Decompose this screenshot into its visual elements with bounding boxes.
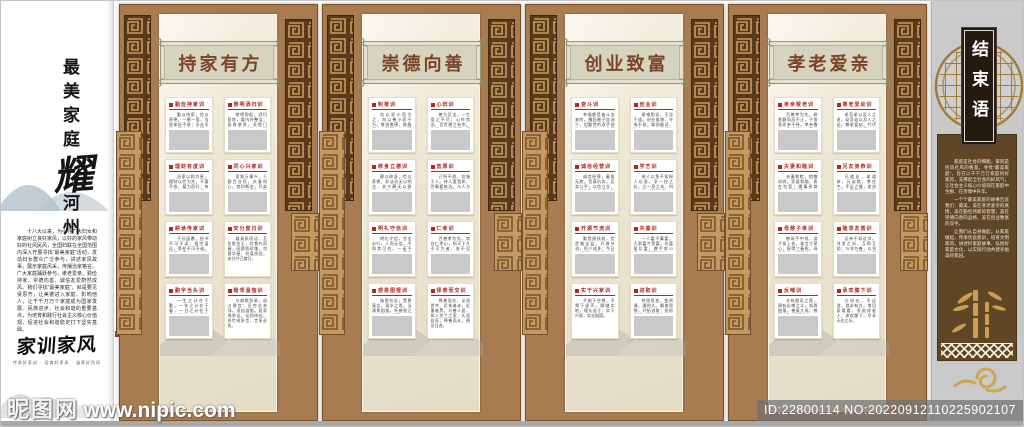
family-motto-card: 兄友弟恭训 兄道友，弟道恭，兄弟睦，孝在中。手足之情，血浓于水；互帮互让，和气满… (833, 159, 881, 215)
bamboo-icon (945, 288, 1009, 340)
family-motto-card: 同心兴家训 家和万事兴，人勤百业旺。夫妻同心，其利断金；兄弟协力，守望相助，勠力… (224, 159, 272, 215)
family-motto-card: 实干兴家训 不驰于空想，不骛于虚声。脚踏实地，埋头苦干；实干兴家，实业报国。 (571, 283, 619, 339)
fret-lattice-strip-light (116, 131, 142, 335)
card-body: 静以修身，俭以养德。非淡泊无以明志，非宁静无以致远。修身立德，方能行稳致远。 (372, 174, 412, 190)
corner-scroll-icon (882, 78, 892, 88)
card-body: 慈母手中线，游子身上衣。谁言寸草心，报得三春晖。母慈子孝，其乐融融。 (778, 236, 818, 252)
card-title-row: 进取训 (634, 287, 674, 296)
card-body: 治家以和为贵，理财以俭为先。不奢不吝，量力而行；有计有划，持之以恒，家道自然兴旺… (169, 174, 209, 190)
red-square-bullet-icon (372, 103, 376, 107)
card-title-row: 孝亲敬老训 (778, 101, 818, 110)
red-square-bullet-icon (778, 289, 782, 293)
corner-scroll-icon (679, 78, 689, 88)
card-image-placeholder (372, 130, 412, 150)
card-title-row: 奋斗训 (575, 101, 615, 110)
card-body: 授人以鱼不如授人以渔。学一技之长，立一身之本；科技兴业，知识致富。 (634, 174, 674, 190)
card-title-row: 宽厚训 (431, 163, 471, 172)
card-image-placeholder (431, 254, 471, 274)
fret-lattice-strip-light (725, 131, 751, 335)
panel-title-plaque: 创业致富 (566, 41, 684, 84)
card-image-placeholder (372, 254, 412, 274)
fret-lattice-strip-light (522, 131, 548, 335)
card-title: 学艺训 (640, 163, 658, 170)
family-motto-card: 诚信经营训 诚信经营，童叟无欺。货真价实，买卖公平；以信立业，以质取胜，生意自然… (571, 159, 619, 215)
card-title: 诚信经营训 (581, 163, 611, 170)
family-motto-card: 安分度日训 器具质而洁，瓦缶胜金玉；饮食约而精，园蔬愈珍馐。勿营华屋，勿谋良田，… (224, 221, 272, 277)
card-title-row: 实干兴家训 (575, 287, 615, 296)
card-title: 明礼守信训 (378, 225, 408, 232)
culture-panel: 持家有方 勤俭持家训 勤以持家，俭以养德。一粥一饭，当思来处不易；半丝半缕，恒念… (119, 4, 318, 421)
card-title-row: 学艺训 (634, 163, 674, 172)
family-motto-card: 进取训 穷则思变，变则通，通则久。解放思想，开拓进取；抢抓机遇，乘势而上，奋楫者… (630, 283, 678, 339)
panel-content-area: 孝老爱亲 孝亲敬老训 百善孝为先。树欲静而风不止，子欲养而亲不待。孝亲敬老，及时… (768, 14, 886, 412)
family-motto-card: 勤字当头训 一生之计在于勤，一年之计在于春，一日之计在于寅。早起三光，迟起三慌，… (165, 283, 213, 339)
card-title: 尊老爱幼训 (843, 101, 873, 108)
card-title-row: 兄友弟恭训 (837, 163, 877, 172)
card-title: 勤俭持家训 (175, 101, 205, 108)
card-title-row: 勤俭持家训 (169, 101, 209, 110)
red-square-bullet-icon (431, 227, 435, 231)
title-calligraphy-char: 耀 (48, 152, 91, 195)
card-title: 心田训 (437, 101, 455, 108)
card-image-placeholder (169, 192, 209, 212)
intro-paragraph: 十八大以来，为引导广大妇女和家庭树立良好家风，以好的家风带动好的社风民风，全国妇… (17, 229, 97, 334)
card-image-placeholder (837, 130, 877, 150)
corner-scroll-icon (476, 37, 486, 47)
card-title-row: 修身立德训 (372, 163, 412, 172)
family-motto-card: 夫妻和睦训 夫妻和睦，相敬如宾。家庭和顺，贵在包容；遇事多商量，有话好好说。 (774, 159, 822, 215)
card-image-placeholder (575, 192, 615, 212)
family-motto-card: 积善训 勿以恶小而为之，勿以善小而不为。惟贤惟德，能服于人。日行一善，积善成德，… (368, 97, 416, 153)
end-paragraph: 家庭是社会的细胞，家风是民风社风的根基。寻找“最美家庭”，旨在以千千万万家庭的好… (945, 159, 1009, 195)
card-title: 承欢膝下训 (843, 287, 873, 294)
card-title-row: 仁孝训 (431, 225, 471, 234)
card-title: 创业训 (640, 101, 658, 108)
family-motto-card: 修身立德训 静以修身，俭以养德。非淡泊无以明志，非宁静无以致远。修身立德，方能行… (368, 159, 416, 215)
family-motto-card: 宽厚训 己所不欲，勿施于人。待人要宽和，世事要练达。与人为善，于己为善；与人有路… (427, 159, 475, 215)
red-square-bullet-icon (575, 103, 579, 107)
card-title-row: 勤字当头训 (169, 287, 209, 296)
watermark-url: www.nipic.com (83, 399, 235, 422)
panel-title: 孝老爱亲 (785, 50, 872, 76)
card-title: 睦邻温恤训 (234, 287, 264, 294)
culture-panel: 创业致富 奋斗训 幸福都是奋斗出来的。撸起袖子加油干，用勤劳的双手创造美好生活，… (525, 4, 724, 421)
card-title: 感恩图报训 (378, 287, 408, 294)
card-body: 艰难困苦，玉汝于成。创业维艰，守成不易；敢闯敢试，敢为人先，方能闯出一片新天地。 (634, 112, 674, 128)
red-square-bullet-icon (837, 289, 841, 293)
family-motto-card: 仁孝训 百善孝为先。常存仁孝心，则天下凡不可为者，皆不忍为。仁爱存心，善念常在。 (427, 221, 475, 277)
red-square-bullet-icon (634, 165, 638, 169)
card-title-row: 同心兴家训 (228, 163, 268, 172)
calligraphy-logo: 家训家风 (16, 330, 98, 360)
card-title-row: 承欢膝下训 (837, 287, 877, 296)
card-title: 安分度日训 (234, 225, 264, 232)
red-square-bullet-icon (634, 227, 638, 231)
family-motto-card: 感恩图报训 施恩勿念，受恩莫忘。滴水之恩，当涌泉相报。怀感恩之心，行仁义之事。 (368, 283, 416, 339)
end-paragraph: 一个个最美家庭的故事告诉我们：最美，美在孝老爱亲的真情，美在勤俭持家的智慧，美在… (945, 197, 1009, 227)
red-square-bullet-icon (228, 103, 232, 107)
corner-scroll-icon (764, 78, 774, 88)
card-image-placeholder (634, 192, 674, 212)
red-square-bullet-icon (372, 165, 376, 169)
card-body: 明礼守信，言出必行。人而无信，不知其可也。一诺千金，诚信为本，童叟无欺。 (372, 236, 412, 252)
card-image-placeholder (837, 192, 877, 212)
red-square-bullet-icon (575, 227, 579, 231)
card-title: 睦邻友善训 (843, 225, 873, 232)
card-title-row: 夫妻和睦训 (778, 163, 818, 172)
card-image-placeholder (575, 130, 615, 150)
card-image-placeholder (372, 316, 412, 336)
card-body: 勤是摇钱树，俭是聚宝盆。开源节流，积少成多；今日之积累，明日之根基。 (575, 236, 615, 252)
fret-lattice-strip (488, 19, 515, 211)
watermark-id-bar: ID:22800114 NO:20220912110225902107 (757, 400, 1023, 421)
fret-lattice-block (494, 213, 522, 271)
family-motto-card: 耕读传家训 子孙虽愚，经书不可不读；祖宗虽远，祭祀不可不诚。耕读传家久，诗书继世… (165, 221, 213, 277)
card-title-row: 耕读传家训 (169, 225, 209, 234)
family-motto-card: 睦邻温恤训 与肩挑贸易，毋占便宜；见穷苦亲邻，须加温恤。居家戒争讼，讼则终凶；处… (224, 283, 272, 339)
card-body: 羊有跪乳之恩，鸦有反哺之义。知恩图报，善莫大焉；感恩父母，回报社会。 (778, 298, 818, 314)
card-image-placeholder (778, 130, 818, 150)
red-square-bullet-icon (575, 165, 579, 169)
watermark-site-logo: 昵图网 (7, 397, 79, 422)
card-body: 百善孝为先。树欲静而风不止，子欲养而亲不待。孝亲敬老，及时行孝，莫待空悲切。 (778, 112, 818, 128)
card-title: 仁孝训 (437, 225, 455, 232)
card-title-row: 创业训 (634, 101, 674, 110)
red-square-bullet-icon (778, 227, 782, 231)
card-body: 器具质而洁，瓦缶胜金玉；饮食约而精，园蔬愈珍馐。勿营华屋，勿谋良田，安分守己度日… (228, 236, 268, 274)
corner-scroll-icon (764, 37, 774, 47)
card-body: 择善而交，见贤思齐。近朱者赤，近墨者黑。与善人居，如入芝兰之室，久而自芳；择善而… (431, 298, 471, 336)
card-image-placeholder (837, 254, 877, 274)
family-motto-card: 勤俭持家训 勤以持家，俭以养德。一粥一饭，当思来处不易；半丝半缕，恒念物力维艰。… (165, 97, 213, 153)
panel-title: 持家有方 (176, 50, 263, 76)
red-square-bullet-icon (837, 103, 841, 107)
card-image-placeholder (634, 316, 674, 336)
red-square-bullet-icon (228, 227, 232, 231)
card-grid: 奋斗训 幸福都是奋斗出来的。撸起袖子加油干，用勤劳的双手创造美好生活，走共同富裕… (571, 97, 677, 339)
red-square-bullet-icon (778, 103, 782, 107)
sheet: 最美家庭耀河州 十八大以来，为引导广大妇女和家庭树立良好家风，以好的家风带动好的… (0, 0, 1024, 427)
panel-title: 崇德向善 (379, 50, 466, 76)
culture-panel: 孝老爱亲 孝亲敬老训 百善孝为先。树欲静而风不止，子欲养而亲不待。孝亲敬老，及时… (728, 4, 927, 421)
card-title: 勤字当头训 (175, 287, 205, 294)
card-image-placeholder (431, 130, 471, 150)
card-image-placeholder (634, 254, 674, 274)
card-image-placeholder (228, 130, 268, 150)
corner-scroll-icon (476, 78, 486, 88)
watermark-left: 昵图网 www.nipic.com (7, 392, 236, 424)
card-title-row: 心田训 (431, 101, 471, 110)
family-motto-card: 创业训 艰难困苦，玉汝于成。创业维艰，守成不易；敢闯敢试，敢为人先，方能闯出一片… (630, 97, 678, 153)
card-image-placeholder (372, 192, 412, 212)
family-motto-card: 学艺训 授人以鱼不如授人以渔。学一技之长，立一身之本；科技兴业，知识致富。 (630, 159, 678, 215)
card-body: 穷则思变，变则通，通则久。解放思想，开拓进取；抢抓机遇，乘势而上，奋楫者先。 (634, 298, 674, 314)
card-title: 黎明洒扫训 (234, 101, 264, 108)
card-body: 子孙虽愚，经书不可不读；祖宗虽远，祭祀不可不诚。耕读传家久，诗书继世长。 (169, 236, 209, 252)
end-text-box: 家庭是社会的细胞，家风是民风社风的根基。寻找“最美家庭”，旨在以千千万万家庭的好… (937, 134, 1017, 361)
card-title: 孝亲敬老训 (784, 101, 814, 108)
family-motto-card: 共富训 一人富不算富，大家富才是富。先富帮后富，携手奔小康，共同富裕路上一个都不… (630, 221, 678, 277)
card-title-row: 母慈子孝训 (778, 225, 818, 234)
panel-title-plaque: 孝老爱亲 (769, 41, 887, 84)
card-body: 家和万事兴，人勤百业旺。夫妻同心，其利断金；兄弟协力，守望相助，勠力同心共兴家业… (228, 174, 268, 190)
corner-scroll-icon (155, 78, 165, 88)
card-title: 宽厚训 (437, 163, 455, 170)
red-square-bullet-icon (634, 289, 638, 293)
card-body: 诚信经营，童叟无欺。货真价实，买卖公平；以信立业，以质取胜，生意自然兴隆。 (575, 174, 615, 190)
fret-lattice-block (291, 213, 319, 271)
card-body: 父母在，不远游，游必有方。常回家看看，多陪伴老人；承欢膝下，尽享天伦之乐。 (837, 298, 877, 336)
card-body: 勿以恶小而为之，勿以善小而不为。惟贤惟德，能服于人。日行一善，积善成德，善行天下… (372, 112, 412, 128)
card-body: 幸福都是奋斗出来的。撸起袖子加油干，用勤劳的双手创造美好生活，走共同富裕之路。 (575, 112, 615, 128)
panel-content-area: 崇德向善 积善训 勿以恶小而为之，勿以善小而不为。惟贤惟德，能服于人。日行一善，… (362, 14, 480, 412)
card-title: 母慈子孝训 (784, 225, 814, 232)
family-motto-card: 尊老爱幼训 老吾老以及人之老，幼吾幼以及人之幼。尊老爱幼，代代相传，中华美德，永… (833, 97, 881, 153)
left-intro-panel: 最美家庭耀河州 十八大以来，为引导广大妇女和家庭树立良好家风，以好的家风带动好的… (1, 1, 114, 423)
card-image-placeholder (169, 254, 209, 274)
corner-scroll-icon (882, 37, 892, 47)
card-image-placeholder (634, 130, 674, 150)
card-body: 老吾老以及人之老，幼吾幼以及人之幼。尊老爱幼，代代相传，中华美德，永驻心间。 (837, 112, 877, 128)
card-image-placeholder (575, 254, 615, 274)
card-title-row: 安分度日训 (228, 225, 268, 234)
card-title: 耕读传家训 (175, 225, 205, 232)
end-paragraph: 让我们从自身做起，从家庭做起，传承优良家训，培育文明家风，讲述好家庭故事、弘扬好… (945, 229, 1009, 259)
red-square-bullet-icon (228, 289, 232, 293)
card-title: 夫妻和睦训 (784, 163, 814, 170)
card-image-placeholder (778, 192, 818, 212)
card-title: 积善训 (378, 101, 396, 108)
red-square-bullet-icon (431, 165, 435, 169)
corner-scroll-icon (273, 78, 283, 88)
card-body: 不驰于空想，不骛于虚声。脚踏实地，埋头苦干；实干兴家，实业报国。 (575, 298, 615, 336)
panel-content-area: 持家有方 勤俭持家训 勤以持家，俭以养德。一粥一饭，当思来处不易；半丝半缕，恒念… (159, 14, 277, 412)
red-square-bullet-icon (372, 289, 376, 293)
card-body: 百善孝为先。常存仁孝心，则天下凡不可为者，皆不忍为。仁爱存心，善念常在。 (431, 236, 471, 252)
fret-lattice-block (697, 213, 725, 271)
card-body: 勤以持家，俭以养德。一粥一饭，当思来处不易；半丝半缕，恒念物力维艰。量入为出，细… (169, 112, 209, 128)
card-title-row: 诚信经营训 (575, 163, 615, 172)
family-motto-card: 明礼守信训 明礼守信，言出必行。人而无信，不知其可也。一诺千金，诚信为本，童叟无… (368, 221, 416, 277)
card-title-row: 积善训 (372, 101, 412, 110)
red-square-bullet-icon (169, 227, 173, 231)
card-body: 夫妻和睦，相敬如宾。家庭和顺，贵在包容；遇事多商量，有话好好说。 (778, 174, 818, 190)
end-panel-text: 家庭是社会的细胞，家风是民风社风的根基。寻找“最美家庭”，旨在以千千万万家庭的好… (945, 159, 1009, 261)
family-motto-card: 反哺训 羊有跪乳之恩，鸦有反哺之义。知恩图报，善莫大焉；感恩父母，回报社会。 (774, 283, 822, 339)
red-square-bullet-icon (634, 103, 638, 107)
card-title: 实干兴家训 (581, 287, 611, 294)
card-body: 施恩勿念，受恩莫忘。滴水之恩，当涌泉相报。怀感恩之心，行仁义之事。 (372, 298, 412, 314)
card-body: 与肩挑贸易，毋占便宜；见穷苦亲邻，须加温恤。居家戒争讼，讼则终凶；处世戒多言，言… (228, 298, 268, 336)
red-square-bullet-icon (372, 227, 376, 231)
red-square-bullet-icon (837, 165, 841, 169)
corner-scroll-icon (155, 37, 165, 47)
family-motto-card: 择善而交训 择善而交，见贤思齐。近朱者赤，近墨者黑。与善人居，如入芝兰之室，久而… (427, 283, 475, 339)
fret-lattice-strip (894, 19, 921, 211)
panel-title-plaque: 持家有方 (160, 41, 278, 84)
card-body: 远亲不如近邻。邻里之间，互帮互助；与邻为善，以邻为伴，守望相助一家亲。 (837, 236, 877, 252)
end-title-plaque: 结束语 (961, 27, 997, 145)
panel-title-plaque: 崇德向善 (363, 41, 481, 84)
card-title-row: 感恩图报训 (372, 287, 412, 296)
card-image-placeholder (169, 316, 209, 336)
panel-content-area: 创业致富 奋斗训 幸福都是奋斗出来的。撸起袖子加油干，用勤劳的双手创造美好生活，… (565, 14, 683, 412)
card-title-row: 睦邻友善训 (837, 225, 877, 234)
corner-scroll-icon (358, 37, 368, 47)
card-body: 己所不欲，勿施于人。待人要宽和，世事要练达。与人为善，于己为善；与人有路，于己有… (431, 174, 471, 190)
corner-scroll-icon (679, 37, 689, 47)
corner-scroll-icon (561, 37, 571, 47)
card-title: 进取训 (640, 287, 658, 294)
red-square-bullet-icon (575, 289, 579, 293)
card-body: 一生之计在于勤，一年之计在于春，一日之计在于寅。早起三光，迟起三慌，勤字当头家业… (169, 298, 209, 314)
fret-lattice-strip-light (319, 131, 345, 335)
card-body: 善为至宝，一生用之不尽；心作良田，百世耕之有余。存好心，说好话，行好事，做好人。 (431, 112, 471, 128)
card-title: 同心兴家训 (234, 163, 264, 170)
end-panel-title: 结束语 (966, 40, 991, 130)
family-motto-card: 孝亲敬老训 百善孝为先。树欲静而风不止，子欲养而亲不待。孝亲敬老，及时行孝，莫待… (774, 97, 822, 153)
title-top-text: 最美家庭 (60, 58, 79, 154)
family-motto-card: 奋斗训 幸福都是奋斗出来的。撸起袖子加油干，用勤劳的双手创造美好生活，走共同富裕… (571, 97, 619, 153)
card-title: 反哺训 (784, 287, 802, 294)
family-motto-card: 开源节流训 勤是摇钱树，俭是聚宝盆。开源节流，积少成多；今日之积累，明日之根基。 (571, 221, 619, 277)
family-motto-card: 心田训 善为至宝，一生用之不尽；心作良田，百世耕之有余。存好心，说好话，行好事，… (427, 97, 475, 153)
card-grid: 勤俭持家训 勤以持家，俭以养德。一粥一饭，当思来处不易；半丝半缕，恒念物力维艰。… (165, 97, 271, 339)
family-motto-card: 黎明洒扫训 黎明即起，洒扫庭除，要内外整洁；既昏便息，关锁门户，必亲自检点。居家… (224, 97, 272, 153)
lattice-band (941, 343, 1013, 358)
red-square-bullet-icon (837, 227, 841, 231)
card-body: 一人富不算富，大家富才是富。先富帮后富，携手奔小康，共同富裕路上一个都不能少。 (634, 236, 674, 252)
card-title-row: 开源节流训 (575, 225, 615, 234)
corner-scroll-icon (358, 78, 368, 88)
panel-title: 创业致富 (582, 50, 669, 76)
family-motto-card: 承欢膝下训 父母在，不远游，游必有方。常回家看看，多陪伴老人；承欢膝下，尽享天伦… (833, 283, 881, 339)
corner-scroll-icon (273, 37, 283, 47)
family-motto-card: 理财有度训 治家以和为贵，理财以俭为先。不奢不吝，量力而行；有计有划，持之以恒，… (165, 159, 213, 215)
card-title: 修身立德训 (378, 163, 408, 170)
card-image-placeholder (778, 254, 818, 274)
card-title-row: 择善而交训 (431, 287, 471, 296)
card-title-row: 睦邻温恤训 (228, 287, 268, 296)
card-title-row: 理财有度训 (169, 163, 209, 172)
card-body: 兄道友，弟道恭，兄弟睦，孝在中。手足之情，血浓于水；互帮互让，和气满堂。 (837, 174, 877, 190)
card-title: 兄友弟恭训 (843, 163, 873, 170)
fret-lattice-block (900, 213, 928, 271)
card-title-row: 共富训 (634, 225, 674, 234)
red-square-bullet-icon (431, 289, 435, 293)
card-title-row: 反哺训 (778, 287, 818, 296)
card-title: 择善而交训 (437, 287, 467, 294)
card-image-placeholder (431, 192, 471, 212)
card-image-placeholder (228, 192, 268, 212)
card-grid: 积善训 勿以恶小而为之，勿以善小而不为。惟贤惟德，能服于人。日行一善，积善成德，… (368, 97, 474, 339)
red-square-bullet-icon (431, 103, 435, 107)
corner-scroll-icon (561, 78, 571, 88)
card-title: 理财有度训 (175, 163, 205, 170)
red-square-bullet-icon (228, 165, 232, 169)
logo-subtitle: 传承好家训 · 培育好家风 · 涵养好民风 (1, 360, 113, 366)
card-title-row: 黎明洒扫训 (228, 101, 268, 110)
end-panel: 结束语 家庭是社会的细胞，家风是民风社风的根基。寻找“最美家庭”，旨在以千千万万… (931, 1, 1024, 423)
fret-lattice-strip (691, 19, 718, 211)
family-motto-card: 母慈子孝训 慈母手中线，游子身上衣。谁言寸草心，报得三春晖。母慈子孝，其乐融融。 (774, 221, 822, 277)
family-motto-card: 睦邻友善训 远亲不如近邻。邻里之间，互帮互助；与邻为善，以邻为伴，守望相助一家亲… (833, 221, 881, 277)
card-title: 开源节流训 (581, 225, 611, 232)
card-title: 奋斗训 (581, 101, 599, 108)
card-image-placeholder (778, 316, 818, 336)
card-body: 黎明即起，洒扫庭除，要内外整洁；既昏便息，关锁门户，必亲自检点。居家有度，处世有… (228, 112, 268, 128)
fret-lattice-strip (285, 19, 312, 211)
red-square-bullet-icon (778, 165, 782, 169)
card-title-row: 尊老爱幼训 (837, 101, 877, 110)
red-square-bullet-icon (169, 289, 173, 293)
card-title-row: 明礼守信训 (372, 225, 412, 234)
logo-block: 家训家风 传承好家训 · 培育好家风 · 涵养好民风 (1, 331, 113, 366)
culture-panel: 崇德向善 积善训 勿以恶小而为之，勿以善小而不为。惟贤惟德，能服于人。日行一善，… (322, 4, 521, 421)
auspicious-cloud-icon (947, 364, 1011, 394)
red-square-bullet-icon (169, 165, 173, 169)
card-grid: 孝亲敬老训 百善孝为先。树欲静而风不止，子欲养而亲不待。孝亲敬老，及时行孝，莫待… (774, 97, 880, 339)
card-title: 共富训 (640, 225, 658, 232)
red-square-bullet-icon (169, 103, 173, 107)
card-image-placeholder (169, 130, 209, 150)
